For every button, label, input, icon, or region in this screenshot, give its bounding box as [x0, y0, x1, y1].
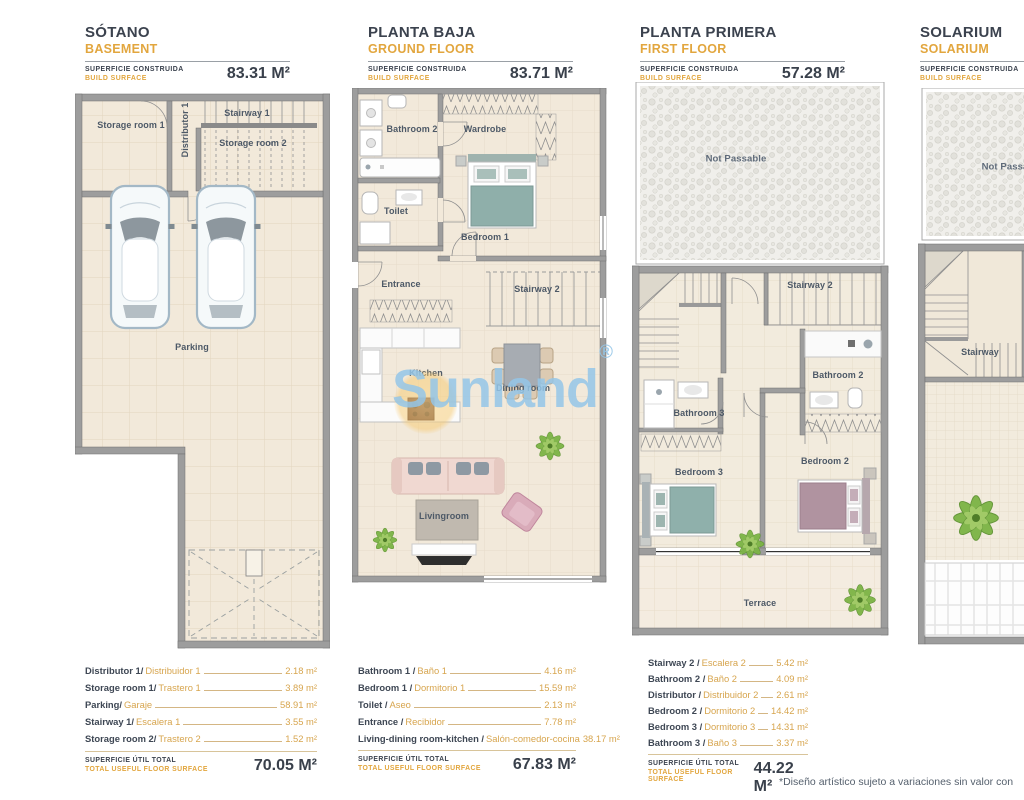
legend-value: 14.42 m²	[771, 706, 808, 715]
legend-total: SUPERFICIE ÚTIL TOTAL TOTAL USEFUL FLOOR…	[85, 751, 317, 775]
room-label-bathroom3: Bathroom 3	[673, 408, 724, 418]
legend-ground: Bathroom 1 /Baño 14.16 m² Bedroom 1 /Dor…	[358, 666, 576, 774]
panel-title-en: SOLARIUM	[920, 42, 1024, 56]
car-icon	[106, 186, 175, 328]
build-surface-label-en: BUILD SURFACE	[920, 75, 1019, 82]
room-label-bathroom2: Bathroom 2	[812, 370, 863, 380]
sofa-icon	[392, 458, 504, 494]
legend-row: Bathroom 3 /Baño 33.37 m²	[648, 738, 808, 748]
solarium-floorplan-svg	[918, 88, 1024, 658]
room-label-bathroom2: Bathroom 2	[386, 124, 437, 134]
legend-name-en: Parking/	[85, 700, 122, 709]
build-surface-label-es: SUPERFICIE CONSTRUIDA	[85, 66, 184, 73]
legend-name-en: Living-dining room-kitchen /	[358, 734, 484, 743]
room-label-kitchen: Kitchen	[409, 368, 443, 378]
legend-row: Stairway 1/Escalera 13.55 m²	[85, 717, 317, 727]
legend-value: 2.18 m²	[285, 666, 317, 675]
legend-row: Bathroom 1 /Baño 14.16 m²	[358, 666, 576, 676]
plant-icon	[845, 585, 876, 616]
legend-leader	[468, 690, 536, 691]
panel-header-first: PLANTA PRIMERA FIRST FLOOR SUPERFICIE CO…	[640, 25, 845, 83]
legend-row: Bedroom 1 /Dormitorio 115.59 m²	[358, 683, 576, 693]
panel-title-es: PLANTA PRIMERA	[640, 25, 845, 41]
coat-rack-hatch	[370, 300, 452, 322]
legend-row: Toilet /Aseo2.13 m²	[358, 700, 576, 710]
legend-value: 3.37 m²	[776, 738, 808, 747]
legend-name-es: Escalera 2	[702, 658, 746, 667]
build-surface-row: SUPERFICIE CONSTRUIDA BUILD SURFACE 83.3…	[85, 66, 290, 83]
solarium-stairs	[925, 251, 1022, 377]
legend-name-en: Stairway 2 /	[648, 658, 700, 667]
room-label-stairway1: Stairway 1	[224, 108, 270, 118]
legend-name-en: Distributor 1/	[85, 666, 143, 675]
panel-title-en: BASEMENT	[85, 42, 290, 56]
legend-row: Bedroom 3 /Dormitorio 314.31 m²	[648, 722, 808, 732]
panel-title-en: GROUND FLOOR	[368, 42, 573, 56]
legend-row: Parking/Garaje58.91 m²	[85, 700, 317, 710]
room-label-storage1: Storage room 1	[97, 120, 164, 130]
room-label-stairway2: Stairway 2	[787, 280, 833, 290]
legend-value: 15.59 m²	[539, 683, 576, 692]
legend-leader	[155, 707, 277, 708]
room-label-living: Livingroom	[419, 511, 469, 521]
disclaimer-note: *Diseño artístico sujeto a variaciones s…	[779, 776, 1013, 788]
legend-value: 1.52 m²	[285, 734, 317, 743]
legend-leader	[204, 673, 283, 674]
room-label-toilet: Toilet	[384, 206, 408, 216]
panel-header-solarium: SOLARIUM SOLARIUM SUPERFICIE CONSTRUIDA …	[920, 25, 1024, 82]
build-surface-label-es: SUPERFICIE CONSTRUIDA	[640, 66, 739, 73]
legend-value: 2.13 m²	[544, 700, 576, 709]
legend-name-en: Bathroom 1 /	[358, 666, 415, 675]
legend-name-en: Bedroom 3 /	[648, 722, 702, 731]
legend-name-es: Salón-comedor-cocina	[486, 734, 580, 743]
room-label-entrance: Entrance	[381, 279, 420, 289]
legend-value: 7.78 m²	[544, 717, 576, 726]
build-surface-value: 83.31 M²	[227, 65, 290, 83]
build-surface-value: 83.71 M²	[510, 65, 573, 83]
total-label-es: SUPERFICIE ÚTIL TOTAL	[648, 760, 754, 767]
legend-name-en: Bedroom 1 /	[358, 683, 412, 692]
legend-value: 5.42 m²	[776, 658, 808, 667]
stove-icon	[408, 398, 434, 420]
legend-value: 2.61 m²	[776, 690, 808, 699]
room-label-not-passable: Not Passable	[982, 162, 1024, 173]
room-label-bedroom3: Bedroom 3	[675, 467, 723, 477]
legend-name-en: Bedroom 2 /	[648, 706, 702, 715]
build-surface-label-en: BUILD SURFACE	[640, 75, 739, 82]
total-value: 67.83 M²	[513, 756, 576, 774]
legend-row: Storage room 1/Trastero 13.89 m²	[85, 683, 317, 693]
total-value: 70.05 M²	[254, 757, 317, 775]
panel-header-ground: PLANTA BAJA GROUND FLOOR SUPERFICIE CONS…	[368, 25, 573, 83]
build-surface-value: 57.28 M²	[782, 65, 845, 83]
legend-row: Bathroom 2 /Baño 24.09 m²	[648, 674, 808, 684]
legend-leader	[204, 741, 282, 742]
legend-row: Entrance /Recibidor7.78 m²	[358, 717, 576, 727]
legend-leader	[183, 724, 282, 725]
wardrobe-hatch	[805, 414, 881, 432]
build-surface-label-en: BUILD SURFACE	[368, 75, 467, 82]
legend-row: Storage room 2/Trastero 21.52 m²	[85, 734, 317, 744]
legend-name-es: Baño 1	[417, 666, 447, 675]
total-label-es: SUPERFICIE ÚTIL TOTAL	[85, 757, 208, 764]
legend-name-es: Dormitorio 1	[414, 683, 465, 692]
basement-floorplan: Storage room 1 Distributor 1 Stairway 1 …	[75, 88, 330, 658]
room-label-parking: Parking	[175, 342, 209, 352]
legend-name-en: Distributor /	[648, 690, 701, 699]
header-divider	[920, 61, 1024, 62]
legend-value: 3.89 m²	[285, 683, 317, 692]
room-label-not-passable: Not Passable	[706, 154, 767, 165]
legend-row: Living-dining room-kitchen /Salón-comedo…	[358, 734, 576, 743]
total-label-en: TOTAL USEFUL FLOOR SURFACE	[85, 766, 208, 773]
legend-row: Stairway 2 /Escalera 25.42 m²	[648, 658, 808, 668]
build-surface-row: SUPERFICIE CONSTRUIDA BUILD SURFACE 57.2…	[640, 66, 845, 83]
basement-floorplan-svg	[75, 88, 330, 658]
plant-icon	[373, 528, 397, 552]
legend-name-es: Distribuidor 2	[703, 690, 758, 699]
legend-row: Distributor 1/Distribuidor 12.18 m²	[85, 666, 317, 676]
ground-floorplan: Bathroom 2 Wardrobe Toilet Bedroom 1 Ent…	[352, 88, 612, 588]
legend-value: 4.09 m²	[776, 674, 808, 683]
build-surface-label-en: BUILD SURFACE	[85, 75, 184, 82]
legend-leader	[448, 724, 541, 725]
panel-title-es: SOLARIUM	[920, 25, 1024, 41]
header-divider	[368, 61, 573, 62]
build-surface-row: SUPERFICIE CONSTRUIDA BUILD SURFACE 83.7…	[368, 66, 573, 83]
room-label-stairway2: Stairway 2	[514, 284, 560, 294]
legend-name-es: Dormitorio 3	[704, 722, 755, 731]
plant-icon	[736, 530, 764, 558]
room-label-storage2: Storage room 2	[219, 138, 286, 148]
panel-title-es: PLANTA BAJA	[368, 25, 573, 41]
bed-icon	[640, 474, 716, 546]
legend-value: 38.17 m²	[583, 734, 620, 743]
legend-leader	[204, 690, 282, 691]
legend-leader	[414, 707, 541, 708]
legend-total: SUPERFICIE ÚTIL TOTAL TOTAL USEFUL FLOOR…	[358, 750, 576, 774]
ground-floorplan-svg	[352, 88, 612, 588]
legend-leader	[740, 745, 773, 746]
legend-leader	[758, 713, 768, 714]
legend-total: SUPERFICIE ÚTIL TOTAL TOTAL USEFUL FLOOR…	[648, 754, 808, 796]
room-label-bedroom1: Bedroom 1	[461, 232, 509, 242]
legend-value: 14.31 m²	[771, 722, 808, 731]
header-divider	[640, 61, 845, 62]
legend-leader	[758, 729, 768, 730]
legend-name-es: Trastero 2	[158, 734, 200, 743]
room-label-wardrobe: Wardrobe	[464, 124, 506, 134]
legend-name-es: Escalera 1	[136, 717, 180, 726]
wardrobe-hatch	[536, 114, 556, 160]
total-label-en: TOTAL USEFUL FLOOR SURFACE	[358, 765, 481, 772]
legend-name-es: Baño 3	[707, 738, 737, 747]
legend-name-en: Bathroom 2 /	[648, 674, 705, 683]
legend-name-en: Toilet /	[358, 700, 388, 709]
legend-name-es: Garaje	[124, 700, 152, 709]
build-surface-row: SUPERFICIE CONSTRUIDA BUILD SURFACE	[920, 66, 1024, 82]
total-label-es: SUPERFICIE ÚTIL TOTAL	[358, 756, 481, 763]
header-divider	[85, 61, 290, 62]
legend-name-es: Baño 2	[707, 674, 737, 683]
build-surface-label-es: SUPERFICIE CONSTRUIDA	[920, 66, 1019, 73]
room-label-dining: Dining room	[496, 383, 550, 393]
legend-name-en: Entrance /	[358, 717, 403, 726]
legend-name-en: Storage room 2/	[85, 734, 156, 743]
legend-name-en: Storage room 1/	[85, 683, 156, 692]
legend-name-es: Distribuidor 1	[145, 666, 200, 675]
floorplan-sheet: SÓTANO BASEMENT SUPERFICIE CONSTRUIDA BU…	[0, 0, 1024, 800]
panel-title-en: FIRST FLOOR	[640, 42, 845, 56]
legend-row: Bedroom 2 /Dormitorio 214.42 m²	[648, 706, 808, 716]
legend-name-es: Recibidor	[405, 717, 445, 726]
tv-unit	[412, 544, 476, 565]
legend-name-es: Trastero 1	[158, 683, 200, 692]
legend-leader	[740, 681, 773, 682]
panel-title-es: SÓTANO	[85, 25, 290, 41]
legend-name-en: Bathroom 3 /	[648, 738, 705, 747]
legend-value: 4.16 m²	[544, 666, 576, 675]
legend-name-es: Dormitorio 2	[704, 706, 755, 715]
panel-header-basement: SÓTANO BASEMENT SUPERFICIE CONSTRUIDA BU…	[85, 25, 290, 83]
plant-icon	[536, 432, 564, 460]
plant-icon	[954, 496, 999, 541]
wardrobe-hatch	[442, 94, 538, 114]
room-label-bedroom2: Bedroom 2	[801, 456, 849, 466]
legend-row: Distributor /Distribuidor 22.61 m²	[648, 690, 808, 700]
legend-value: 3.55 m²	[285, 717, 317, 726]
room-label-terrace: Terrace	[744, 598, 777, 608]
total-label-en: TOTAL USEFUL FLOOR SURFACE	[648, 769, 754, 783]
first-floorplan: Not Passable Stairway 2 Bathroom 2 Bathr…	[632, 82, 894, 658]
legend-leader	[749, 665, 773, 666]
room-label-distributor: Distributor 1	[180, 103, 190, 158]
wardrobe-hatch	[641, 434, 721, 451]
legend-name-es: Aseo	[390, 700, 411, 709]
legend-value: 58.91 m²	[280, 700, 317, 709]
legend-leader	[761, 697, 773, 698]
build-surface-label-es: SUPERFICIE CONSTRUIDA	[368, 66, 467, 73]
room-label-stairway: Stairway	[961, 347, 999, 357]
pergola	[925, 563, 1024, 635]
bed-icon	[456, 154, 548, 228]
solarium-floorplan: Not Passable Stairway	[918, 88, 1024, 658]
legend-leader	[450, 673, 541, 674]
car-icon	[192, 186, 261, 328]
legend-name-en: Stairway 1/	[85, 717, 134, 726]
legend-basement: Distributor 1/Distribuidor 12.18 m² Stor…	[85, 666, 317, 775]
